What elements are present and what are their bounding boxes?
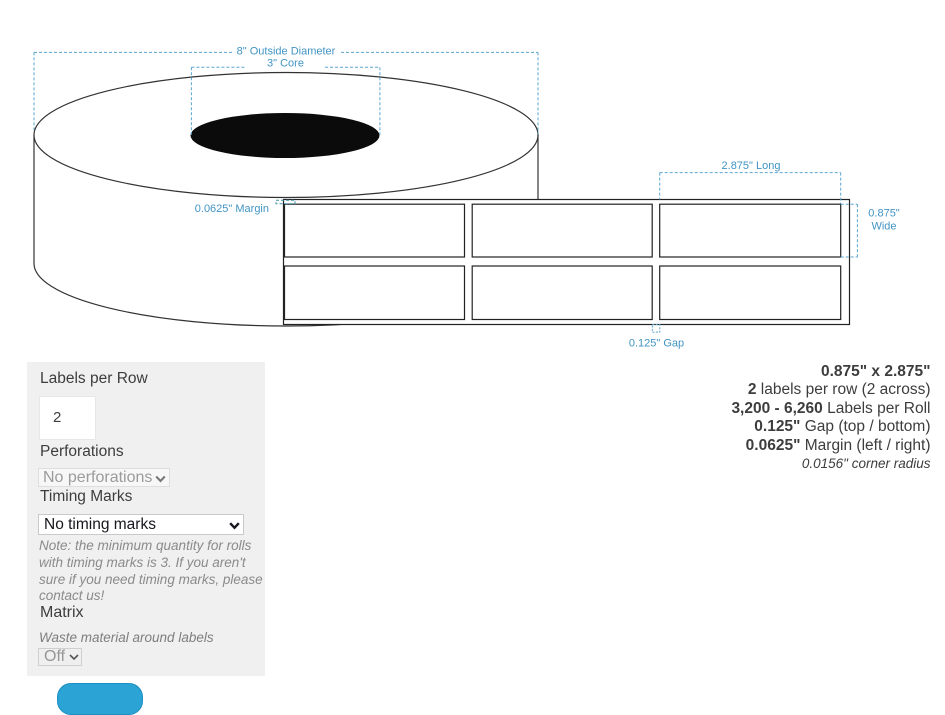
svg-text:3" Core: 3" Core — [267, 58, 304, 70]
svg-text:2.875" Long: 2.875" Long — [722, 160, 781, 172]
svg-text:0.0625" Margin: 0.0625" Margin — [195, 203, 269, 215]
svg-text:Wide: Wide — [871, 221, 896, 233]
svg-text:8" Outside Diameter: 8" Outside Diameter — [237, 46, 336, 58]
svg-text:0.875": 0.875" — [868, 208, 900, 220]
svg-text:0.125" Gap: 0.125" Gap — [629, 338, 684, 350]
